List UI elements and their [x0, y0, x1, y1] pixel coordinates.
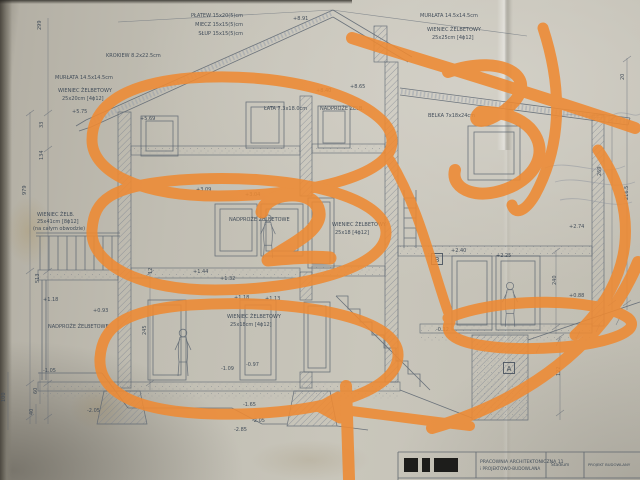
human-figures	[175, 215, 518, 376]
component-label: SŁUP 15x15(5)cm	[198, 31, 243, 37]
elevation-label: -1.05	[43, 368, 56, 374]
marker-connector-stroke	[390, 160, 448, 312]
title-block-firm2: i PROJEKTOWO-BUDOWLANA	[480, 466, 540, 471]
component-label: 25x25cm [4ϕ12]	[432, 35, 474, 41]
dimension-label: 513	[35, 273, 41, 283]
elevation-label: +2.25	[496, 253, 511, 259]
section-marker: A	[507, 365, 512, 373]
elevation-label: -0.97	[246, 362, 259, 368]
component-label: WIENIEC ŻELBETOWY	[227, 313, 282, 320]
elevation-label: +5.75	[72, 109, 87, 115]
dimension-label: 100	[1, 392, 7, 402]
marker-vertical-stroke	[346, 386, 349, 479]
component-label: WIENIEC ŻELB.	[37, 211, 75, 218]
dimension-label: 134	[39, 150, 45, 160]
component-label: NADPROŻE ŻELBETOWE	[48, 323, 109, 330]
dimension-label: 33	[39, 122, 45, 128]
title-block: PRACOWNIA ARCHITEKTONICZNA 11 i PROJEKTO…	[398, 452, 640, 480]
title-block-stadium: Stadium	[551, 462, 569, 468]
elevation-label: +2.40	[451, 248, 466, 254]
component-label: WIENIEC ŻELBETOWY	[58, 87, 113, 94]
dimension-label: 12	[148, 268, 154, 274]
component-label: BELKA 7x18x24cm	[428, 113, 475, 119]
dimension-label: 40	[29, 409, 35, 415]
dimension-label: 979	[22, 185, 28, 195]
elevation-label: +1.32	[220, 276, 235, 282]
dimension-label: 299	[37, 20, 43, 30]
elevation-label: -2.85	[234, 427, 247, 433]
elevation-label: -1.09	[221, 366, 234, 372]
elevation-label: +8.65	[350, 84, 365, 90]
component-label: MURŁATA 14.5x14.5cm	[420, 13, 478, 19]
elevation-label: -2.05	[87, 408, 100, 414]
dimension-label: 245	[142, 325, 148, 335]
component-label: 25x18cm [4ϕ12]	[230, 322, 272, 328]
elevation-label: -1.65	[243, 402, 256, 408]
blueprint-drawing: PRACOWNIA ARCHITEKTONICZNA 11 i PROJEKTO…	[0, 0, 640, 480]
dimension-label: 60	[33, 388, 39, 394]
component-label: WIENIEC ŻELBETOWY	[427, 26, 482, 33]
dimension-label: 20	[620, 74, 626, 80]
elevation-label: +1.18	[43, 297, 58, 303]
elevation-label: +0.93	[93, 308, 108, 314]
component-label: ŁATA 7.3x18.0cm	[263, 106, 307, 112]
dimension-label: 269	[597, 166, 603, 176]
blueprint-photo: PRACOWNIA ARCHITEKTONICZNA 11 i PROJEKTO…	[0, 0, 640, 480]
component-label: PŁATEW 15x20(5)cm	[191, 13, 243, 19]
component-label: MIECZ 15x15(5)cm	[195, 22, 243, 28]
elevation-label: +8.91	[293, 16, 308, 22]
elevation-label: +5.69	[140, 116, 155, 122]
component-label: 25x41cm [8ϕ12]	[37, 219, 79, 225]
elevation-label: +2.74	[569, 224, 584, 230]
component-label: (na całym obwodzie)	[33, 226, 85, 232]
dimension-label: 240	[552, 275, 558, 285]
component-label: KROKIEW 8.2x22.5cm	[106, 53, 161, 59]
component-label: MURŁATA 14.5x14.5cm	[55, 75, 113, 81]
component-label: 25x18 [4ϕ12]	[335, 230, 369, 236]
component-label: 25x20cm [4ϕ12]	[62, 96, 104, 102]
title-block-project: PROJEKT BUDOWLANY	[588, 462, 631, 467]
elevation-label: +1.44	[193, 269, 208, 275]
